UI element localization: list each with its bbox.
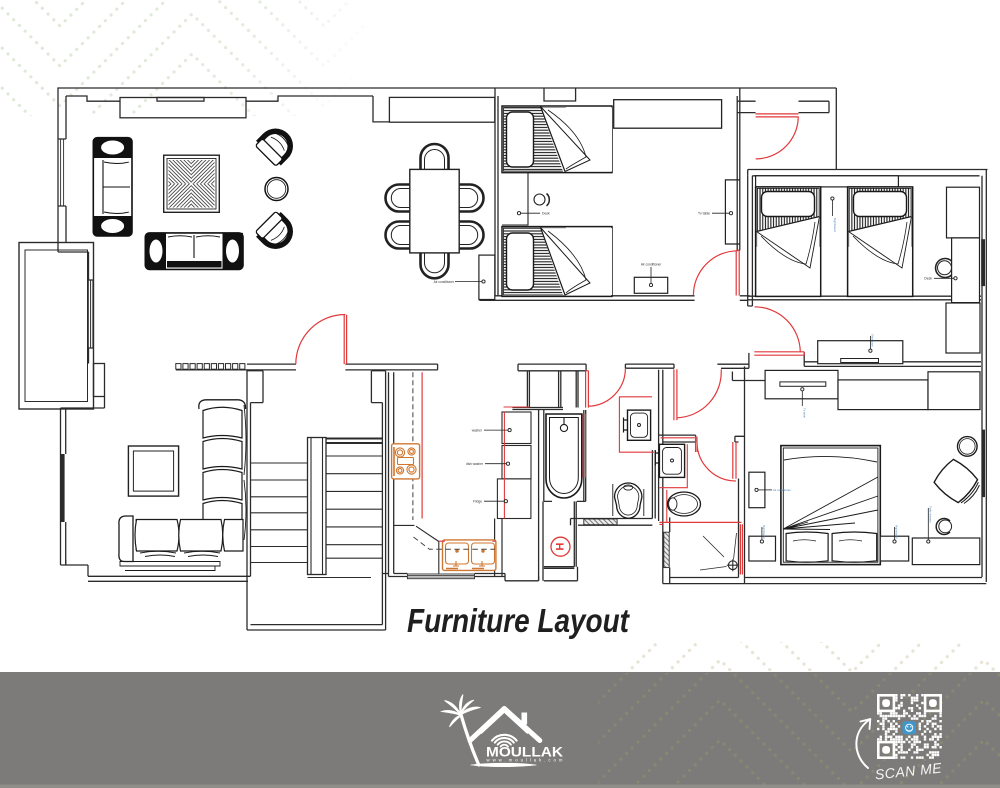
svg-text:Nightstand: Nightstand <box>762 525 766 539</box>
svg-text:H: H <box>555 543 567 551</box>
svg-text:MOULLAK: MOULLAK <box>486 744 563 759</box>
svg-text:Desk: Desk <box>924 277 932 281</box>
svg-text:Fridge: Fridge <box>473 500 482 504</box>
svg-text:Nightstand: Nightstand <box>833 218 837 232</box>
svg-text:Shoe rack: Shoe rack <box>871 334 875 347</box>
svg-text:washer: washer <box>472 429 483 433</box>
svg-text:Tv table: Tv table <box>698 212 710 216</box>
svg-text:Nightstand: Nightstand <box>895 525 899 539</box>
svg-text:Furniture Layout: Furniture Layout <box>407 602 631 639</box>
svg-text:Air conditioner: Air conditioner <box>434 280 455 284</box>
svg-text:Tv table: Tv table <box>803 408 807 418</box>
svg-text:Table dresser: Table dresser <box>929 506 933 523</box>
svg-text:Air conditioner: Air conditioner <box>773 488 791 492</box>
svg-text:dish washer: dish washer <box>466 462 484 466</box>
svg-text:Air conditioner: Air conditioner <box>641 263 662 267</box>
svg-text:Desk: Desk <box>542 212 550 216</box>
